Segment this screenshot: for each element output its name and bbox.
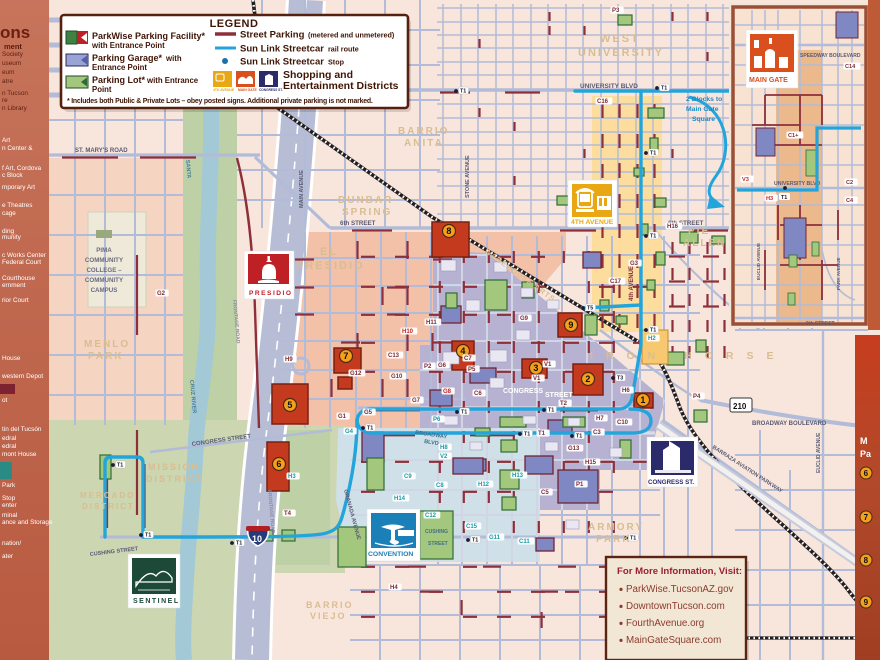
svg-text:C1+: C1+ (788, 133, 799, 139)
svg-text:T1: T1 (460, 89, 466, 95)
svg-text:Pa: Pa (860, 449, 872, 459)
svg-text:e Theatres: e Theatres (2, 202, 32, 209)
svg-text:EUCLID AVENUE: EUCLID AVENUE (756, 243, 761, 280)
svg-text:V3: V3 (742, 177, 749, 183)
svg-text:ANITA: ANITA (404, 138, 444, 149)
svg-text:C15: C15 (466, 524, 478, 530)
svg-text:T3: T3 (617, 376, 623, 382)
svg-text:mont House: mont House (2, 451, 37, 458)
svg-text:6: 6 (276, 459, 281, 469)
svg-text:* Includes both Public & Priva: * Includes both Public & Private Lots – … (67, 98, 373, 105)
svg-text:Federal Court: Federal Court (2, 259, 41, 266)
svg-text:Entrance Point: Entrance Point (92, 63, 147, 72)
svg-text:House: House (2, 355, 21, 362)
svg-text:PIE: PIE (688, 226, 710, 237)
svg-text:4TH AVENUE: 4TH AVENUE (213, 88, 235, 92)
svg-text:G5: G5 (364, 410, 373, 416)
svg-text:G6: G6 (438, 363, 447, 369)
svg-text:STONE AVENUE: STONE AVENUE (465, 155, 471, 198)
svg-text:n Center &: n Center & (2, 145, 33, 152)
svg-text:with: with (165, 54, 182, 63)
svg-text:G8: G8 (443, 389, 452, 395)
svg-text:10: 10 (252, 534, 262, 544)
svg-text:Stop: Stop (2, 495, 16, 502)
svg-text:western Depot: western Depot (1, 373, 43, 380)
svg-text:V1: V1 (544, 362, 552, 368)
svg-text:T1: T1 (145, 533, 151, 539)
svg-text:C17: C17 (610, 279, 622, 285)
svg-text:eum: eum (2, 69, 14, 76)
svg-text:CUSHING: CUSHING (425, 529, 448, 535)
svg-text:G7: G7 (412, 398, 421, 404)
svg-text:P6: P6 (433, 417, 441, 423)
svg-text:Sun Link Streetcar: Sun Link Streetcar (240, 57, 324, 68)
svg-text:nation/: nation/ (2, 540, 21, 547)
svg-text:C14: C14 (845, 64, 856, 70)
svg-text:enter: enter (2, 502, 17, 509)
svg-text:T2: T2 (560, 401, 568, 407)
svg-text:2: 2 (585, 374, 590, 384)
svg-text:ARMORY: ARMORY (588, 522, 644, 533)
svg-text:C8: C8 (436, 483, 444, 489)
svg-text:G2: G2 (157, 291, 166, 297)
svg-text:P3: P3 (612, 8, 620, 14)
svg-text:COMMUNITY: COMMUNITY (85, 257, 124, 264)
svg-text:n Library: n Library (2, 105, 28, 112)
svg-text:(metered and unmetered): (metered and unmetered) (308, 31, 395, 40)
svg-text:C10: C10 (617, 420, 629, 426)
svg-text:T1: T1 (524, 432, 530, 438)
svg-text:T1: T1 (576, 434, 582, 440)
svg-text:H15: H15 (585, 460, 597, 466)
svg-text:CONGRESS ST.: CONGRESS ST. (648, 479, 694, 486)
svg-text:PRESIDIO: PRESIDIO (296, 260, 365, 272)
svg-text:T1: T1 (650, 151, 656, 157)
svg-text:C16: C16 (597, 99, 609, 105)
svg-text:H9: H9 (285, 357, 293, 363)
svg-text:WEST: WEST (600, 33, 640, 45)
svg-text:CAMPUS: CAMPUS (91, 287, 118, 294)
svg-text:PARK: PARK (596, 534, 632, 545)
svg-text:M: M (860, 436, 868, 446)
svg-text:T5: T5 (587, 306, 593, 312)
svg-text:Society: Society (2, 51, 24, 58)
svg-text:BARRIO: BARRIO (306, 600, 354, 610)
svg-text:T1: T1 (548, 408, 554, 414)
svg-text:H8: H8 (440, 445, 448, 451)
svg-text:H2: H2 (648, 336, 656, 342)
svg-text:7: 7 (864, 513, 869, 522)
svg-text:ST. MARY'S ROAD: ST. MARY'S ROAD (75, 148, 128, 154)
svg-text:re: re (2, 97, 8, 104)
svg-text:Point: Point (92, 85, 112, 94)
svg-text:Main Gate: Main Gate (686, 106, 719, 113)
svg-text:H14: H14 (394, 496, 406, 502)
svg-text:useum: useum (2, 60, 21, 67)
svg-text:4th AVENUE: 4th AVENUE (629, 266, 635, 301)
svg-text:VIEJO: VIEJO (310, 611, 347, 621)
svg-text:c Block: c Block (2, 172, 23, 179)
svg-text:DISTRICT: DISTRICT (82, 502, 135, 511)
svg-text:COLLEGE –: COLLEGE – (86, 267, 122, 274)
svg-text:rail route: rail route (328, 45, 359, 54)
svg-text:MISSION: MISSION (148, 462, 200, 472)
svg-text:ons: ons (0, 23, 30, 42)
svg-text:STREET: STREET (545, 392, 573, 399)
svg-text:with Entrance: with Entrance (146, 76, 199, 85)
svg-text:H6: H6 (622, 388, 630, 394)
svg-text:6th STREET: 6th STREET (806, 321, 835, 327)
svg-text:Parking Lot*: Parking Lot* (92, 75, 146, 85)
svg-text:H13: H13 (512, 473, 524, 479)
svg-text:C12: C12 (425, 513, 437, 519)
svg-text:For More Information, Visit:: For More Information, Visit: (617, 566, 742, 577)
svg-text:mporary Art: mporary Art (2, 184, 35, 191)
svg-text:n Tucson: n Tucson (2, 90, 28, 97)
svg-text:UNIVERSITY BLVD: UNIVERSITY BLVD (774, 181, 820, 187)
svg-text:ater: ater (2, 553, 14, 560)
svg-text:P5: P5 (468, 367, 476, 373)
svg-text:MAIN GATE: MAIN GATE (238, 88, 258, 92)
svg-text:7: 7 (343, 351, 348, 361)
svg-text:Art: Art (2, 137, 10, 144)
svg-text:G13: G13 (568, 446, 580, 452)
svg-text:edral: edral (2, 435, 16, 442)
svg-text:8: 8 (446, 226, 451, 236)
svg-text:1: 1 (640, 395, 645, 405)
svg-text:G1: G1 (338, 414, 347, 420)
svg-text:BARRIO: BARRIO (398, 126, 449, 137)
svg-text:T1: T1 (538, 431, 546, 437)
svg-text:DowntownTucson.com: DowntownTucson.com (626, 601, 725, 612)
svg-text:MAIN GATE: MAIN GATE (749, 77, 788, 84)
svg-text:H7: H7 (596, 416, 604, 422)
svg-text:C3: C3 (593, 430, 601, 436)
svg-text:G9: G9 (520, 316, 529, 322)
svg-text:LEGEND: LEGEND (210, 18, 259, 30)
svg-text:Street Parking: Street Parking (240, 30, 305, 41)
svg-text:UNIVERSITY BLVD: UNIVERSITY BLVD (580, 83, 638, 90)
svg-text:ParkWise.TucsonAZ.gov: ParkWise.TucsonAZ.gov (626, 584, 734, 595)
svg-text:V2: V2 (440, 454, 448, 460)
svg-text:G11: G11 (489, 535, 501, 541)
svg-text:BROADWAY BOULEVARD: BROADWAY BOULEVARD (752, 421, 827, 427)
svg-text:H16: H16 (667, 224, 679, 230)
svg-text:P4: P4 (693, 394, 701, 400)
svg-text:6: 6 (864, 469, 869, 478)
svg-text:Park: Park (2, 482, 16, 489)
svg-text:T1: T1 (661, 86, 667, 92)
svg-text:DISTRICT: DISTRICT (146, 474, 204, 484)
svg-text:H3: H3 (288, 474, 296, 480)
svg-text:MainGateSquare.com: MainGateSquare.com (626, 635, 721, 646)
svg-text:Square: Square (692, 116, 715, 123)
svg-text:SPRING: SPRING (342, 207, 392, 218)
svg-text:P1: P1 (576, 482, 584, 488)
svg-text:C4: C4 (846, 198, 854, 204)
svg-text:C11: C11 (519, 539, 530, 545)
svg-text:P2: P2 (424, 364, 432, 370)
svg-text:CONGRESS ST.: CONGRESS ST. (259, 88, 283, 92)
svg-text:PARK AVENUE: PARK AVENUE (836, 257, 841, 290)
svg-text:4TH AVENUE: 4TH AVENUE (571, 219, 614, 226)
svg-text:G12: G12 (350, 371, 362, 377)
svg-text:C6: C6 (474, 391, 482, 397)
svg-text:Parking Garage*: Parking Garage* (92, 53, 163, 63)
svg-text:T4: T4 (284, 511, 292, 517)
svg-text:PARK: PARK (88, 351, 124, 362)
svg-text:rior Court: rior Court (2, 297, 29, 304)
svg-text:C13: C13 (388, 353, 400, 359)
svg-text:FourthAvenue.org: FourthAvenue.org (626, 618, 704, 629)
svg-text:f Art, Cordova: f Art, Cordova (2, 165, 42, 172)
svg-text:8: 8 (864, 556, 869, 565)
svg-text:G4: G4 (345, 429, 354, 435)
svg-text:EUCLID AVENUE: EUCLID AVENUE (816, 432, 822, 473)
svg-text:PRESIDIO: PRESIDIO (249, 290, 293, 297)
svg-text:T1: T1 (236, 541, 242, 547)
svg-text:MENLO: MENLO (84, 339, 130, 350)
svg-text:5: 5 (287, 400, 292, 410)
svg-text:edral: edral (2, 443, 16, 450)
svg-text:STREET: STREET (428, 541, 448, 547)
svg-text:ment: ment (4, 42, 22, 51)
svg-text:ot: ot (2, 397, 8, 404)
svg-text:H4: H4 (390, 585, 398, 591)
svg-text:ance and Storage: ance and Storage (2, 519, 53, 526)
svg-text:3: 3 (533, 363, 538, 373)
svg-text:T1: T1 (781, 195, 787, 201)
svg-text:C2: C2 (846, 180, 853, 186)
svg-text:UNIVERSITY: UNIVERSITY (578, 47, 664, 59)
svg-text:G10: G10 (391, 374, 403, 380)
svg-text:C5: C5 (541, 490, 549, 496)
svg-text:T1: T1 (650, 328, 656, 334)
svg-text:IRON HORSE: IRON HORSE (590, 350, 787, 362)
svg-text:C9: C9 (404, 474, 412, 480)
svg-text:T1: T1 (472, 538, 478, 544)
svg-text:CONGRESS: CONGRESS (503, 388, 543, 395)
svg-text:c Works Center: c Works Center (2, 252, 47, 259)
svg-text:H3: H3 (766, 196, 773, 202)
svg-text:V1: V1 (533, 376, 541, 382)
svg-text:cage: cage (2, 210, 16, 217)
svg-text:C7: C7 (464, 356, 472, 362)
svg-text:ParkWise Parking Facility*: ParkWise Parking Facility* (92, 31, 205, 41)
svg-text:MAIN AVENUE: MAIN AVENUE (299, 170, 305, 208)
svg-text:T1: T1 (461, 410, 467, 416)
svg-text:COMMUNITY: COMMUNITY (85, 277, 124, 284)
svg-text:with Entrance Point: with Entrance Point (91, 41, 165, 50)
svg-text:9: 9 (568, 320, 573, 330)
svg-text:SENTINEL: SENTINEL (133, 598, 180, 605)
svg-text:atre: atre (2, 78, 13, 85)
svg-text:210: 210 (733, 402, 747, 411)
svg-text:2 Blocks to: 2 Blocks to (686, 96, 722, 103)
svg-text:H11: H11 (426, 320, 437, 326)
svg-text:H12: H12 (478, 482, 490, 488)
svg-text:ALLEN: ALLEN (683, 238, 726, 249)
svg-text:EL: EL (320, 246, 338, 258)
svg-text:minal: minal (2, 512, 17, 519)
svg-text:H10: H10 (402, 329, 414, 335)
svg-text:T1: T1 (367, 426, 373, 432)
svg-text:9: 9 (864, 598, 869, 607)
svg-text:ernment: ernment (2, 282, 26, 289)
svg-text:munity: munity (2, 234, 22, 241)
svg-text:Stop: Stop (328, 58, 345, 67)
svg-text:T1: T1 (650, 234, 656, 240)
svg-text:6th STREET: 6th STREET (340, 220, 376, 227)
svg-text:Sun Link Streetcar: Sun Link Streetcar (240, 44, 324, 55)
svg-text:SPEEDWAY BOULEVARD: SPEEDWAY BOULEVARD (800, 53, 861, 59)
svg-text:CONVENTION: CONVENTION (368, 551, 413, 558)
svg-text:Courthouse: Courthouse (2, 275, 35, 282)
svg-text:tin del Tucsón: tin del Tucsón (2, 426, 42, 433)
svg-text:G3: G3 (630, 261, 639, 267)
svg-text:PIMA: PIMA (96, 247, 112, 254)
svg-text:MERCADO: MERCADO (80, 491, 135, 500)
svg-text:Entertainment Districts: Entertainment Districts (283, 80, 399, 92)
svg-text:T1: T1 (117, 463, 123, 469)
svg-text:DUNBAR: DUNBAR (338, 195, 393, 206)
